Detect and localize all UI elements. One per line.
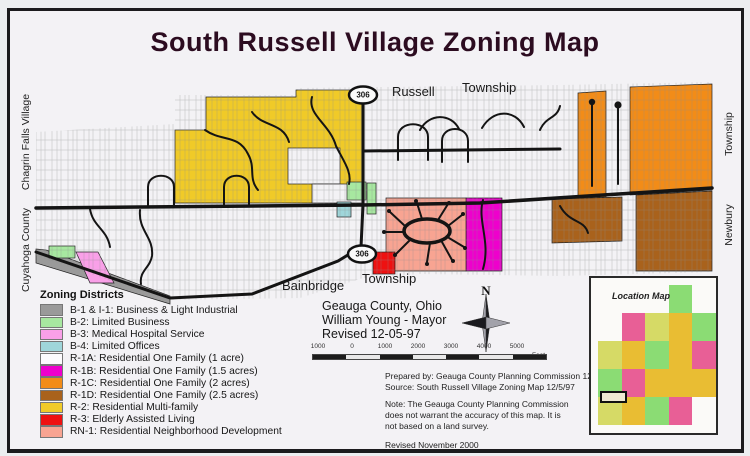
township-cell xyxy=(669,341,693,369)
mayor-name: William Young - Mayor xyxy=(322,313,446,327)
legend-swatch xyxy=(40,304,63,316)
legend-label: RN-1: Residential Neighborhood Developme… xyxy=(70,426,282,437)
compass-north-label: N xyxy=(470,283,502,299)
township-cell xyxy=(692,313,716,341)
label-township-right: Township xyxy=(723,102,735,166)
township-cell xyxy=(645,313,669,341)
disclaimer-line: not based on a land survey. xyxy=(385,421,611,432)
legend-label: R-3: Elderly Assisted Living xyxy=(70,414,195,425)
township-cell xyxy=(622,341,646,369)
scale-segment xyxy=(413,355,446,359)
legend-item: R-3: Elderly Assisted Living xyxy=(40,414,320,426)
scale-tick-label: 2000 xyxy=(411,343,425,350)
scale-segment xyxy=(380,355,413,359)
label-russell: Russell xyxy=(392,84,435,99)
legend-swatch xyxy=(40,341,63,353)
scale-tick-label: 0 xyxy=(350,343,354,350)
legend-item: R-1B: Residential One Family (1.5 acres) xyxy=(40,365,320,377)
legend-item: R-1A: Residential One Family (1 acre) xyxy=(40,353,320,365)
legend-label: B-2: Limited Business xyxy=(70,317,170,328)
route-306-text-south: 306 xyxy=(355,250,368,259)
page-title: South Russell Village Zoning Map xyxy=(0,27,750,58)
scale-segment xyxy=(346,355,379,359)
disclaimer-line: does not warrant the accuracy of this ma… xyxy=(385,410,611,421)
label-cuyahoga-county: Cuyahoga County xyxy=(20,204,32,296)
county-name: Geauga County, Ohio xyxy=(322,299,446,313)
legend-swatch xyxy=(40,329,63,341)
legend-item: B-3: Medical Hospital Service xyxy=(40,328,320,340)
legend-item: R-2: Residential Multi-family xyxy=(40,402,320,414)
label-newbury: Newbury xyxy=(723,197,735,253)
legend-item: B-1 & I-1: Business & Light Industrial xyxy=(40,304,320,316)
township-cell xyxy=(645,397,669,425)
township-cell xyxy=(669,397,693,425)
township-cell xyxy=(669,285,693,313)
location-map-title: Location Map xyxy=(612,291,670,301)
legend-label: R-1A: Residential One Family (1 acre) xyxy=(70,353,244,364)
scale-segment xyxy=(446,355,479,359)
scale-tick-label: 3000 xyxy=(444,343,458,350)
legend-swatch xyxy=(40,377,63,389)
label-township-bottom: Township xyxy=(362,271,416,286)
legend-swatch xyxy=(40,402,63,414)
legend-label: R-1D: Residential One Family (2.5 acres) xyxy=(70,390,258,401)
township-cell xyxy=(692,341,716,369)
scale-tick-label: 5000 xyxy=(510,343,524,350)
township-cell xyxy=(622,313,646,341)
legend-swatch xyxy=(40,426,63,438)
label-chagrin-falls-village: Chagrin Falls Village xyxy=(20,92,32,192)
legend: Zoning Districts B-1 & I-1: Business & L… xyxy=(40,289,320,438)
legend-item: R-1D: Residential One Family (2.5 acres) xyxy=(40,389,320,401)
scale-segment xyxy=(479,355,512,359)
legend-swatch xyxy=(40,390,63,402)
south-russell-marker xyxy=(600,391,627,403)
scale-tick-label: 4000 xyxy=(477,343,491,350)
revised-note: Revised November 2000 xyxy=(385,440,611,451)
upper-road xyxy=(363,149,560,151)
legend-label: R-1B: Residential One Family (1.5 acres) xyxy=(70,366,258,377)
legend-label: R-2: Residential Multi-family xyxy=(70,402,198,413)
legend-label: B-3: Medical Hospital Service xyxy=(70,329,204,340)
legend-swatch xyxy=(40,365,63,377)
route-306-text-north: 306 xyxy=(356,91,369,100)
legend-heading: Zoning Districts xyxy=(40,289,320,301)
county-info-block: Geauga County, Ohio William Young - Mayo… xyxy=(322,299,446,341)
township-cell xyxy=(692,369,716,397)
legend-item: B-2: Limited Business xyxy=(40,316,320,328)
legend-label: R-1C: Residential One Family (2 acres) xyxy=(70,378,250,389)
township-cell xyxy=(669,369,693,397)
scale-tick-label: 1000 xyxy=(378,343,392,350)
disclaimer-line: Note: The Geauga County Planning Commiss… xyxy=(385,399,611,410)
legend-swatch xyxy=(40,317,63,329)
source-note: Source: South Russell Village Zoning Map… xyxy=(385,382,611,393)
location-map-inset: Location Map xyxy=(589,276,718,435)
township-cell xyxy=(669,313,693,341)
legend-item: R-1C: Residential One Family (2 acres) xyxy=(40,377,320,389)
scale-bar: 1000010002000300040005000 Feet xyxy=(306,343,556,361)
credits-block: Prepared by: Geauga County Planning Comm… xyxy=(385,371,611,451)
scale-segment xyxy=(513,355,546,359)
legend-label: B-4: Limited Offices xyxy=(70,341,160,352)
revision-date: Revised 12-05-97 xyxy=(322,327,446,341)
legend-item: RN-1: Residential Neighborhood Developme… xyxy=(40,426,320,438)
township-cell xyxy=(645,369,669,397)
legend-swatch xyxy=(40,414,63,426)
scale-bar-segments xyxy=(312,354,547,360)
prepared-by: Prepared by: Geauga County Planning Comm… xyxy=(385,371,611,382)
label-township-top: Township xyxy=(462,80,516,95)
legend-swatch xyxy=(40,353,63,365)
township-cell xyxy=(598,341,622,369)
township-cell xyxy=(645,341,669,369)
legend-item: B-4: Limited Offices xyxy=(40,341,320,353)
legend-label: B-1 & I-1: Business & Light Industrial xyxy=(70,305,238,316)
